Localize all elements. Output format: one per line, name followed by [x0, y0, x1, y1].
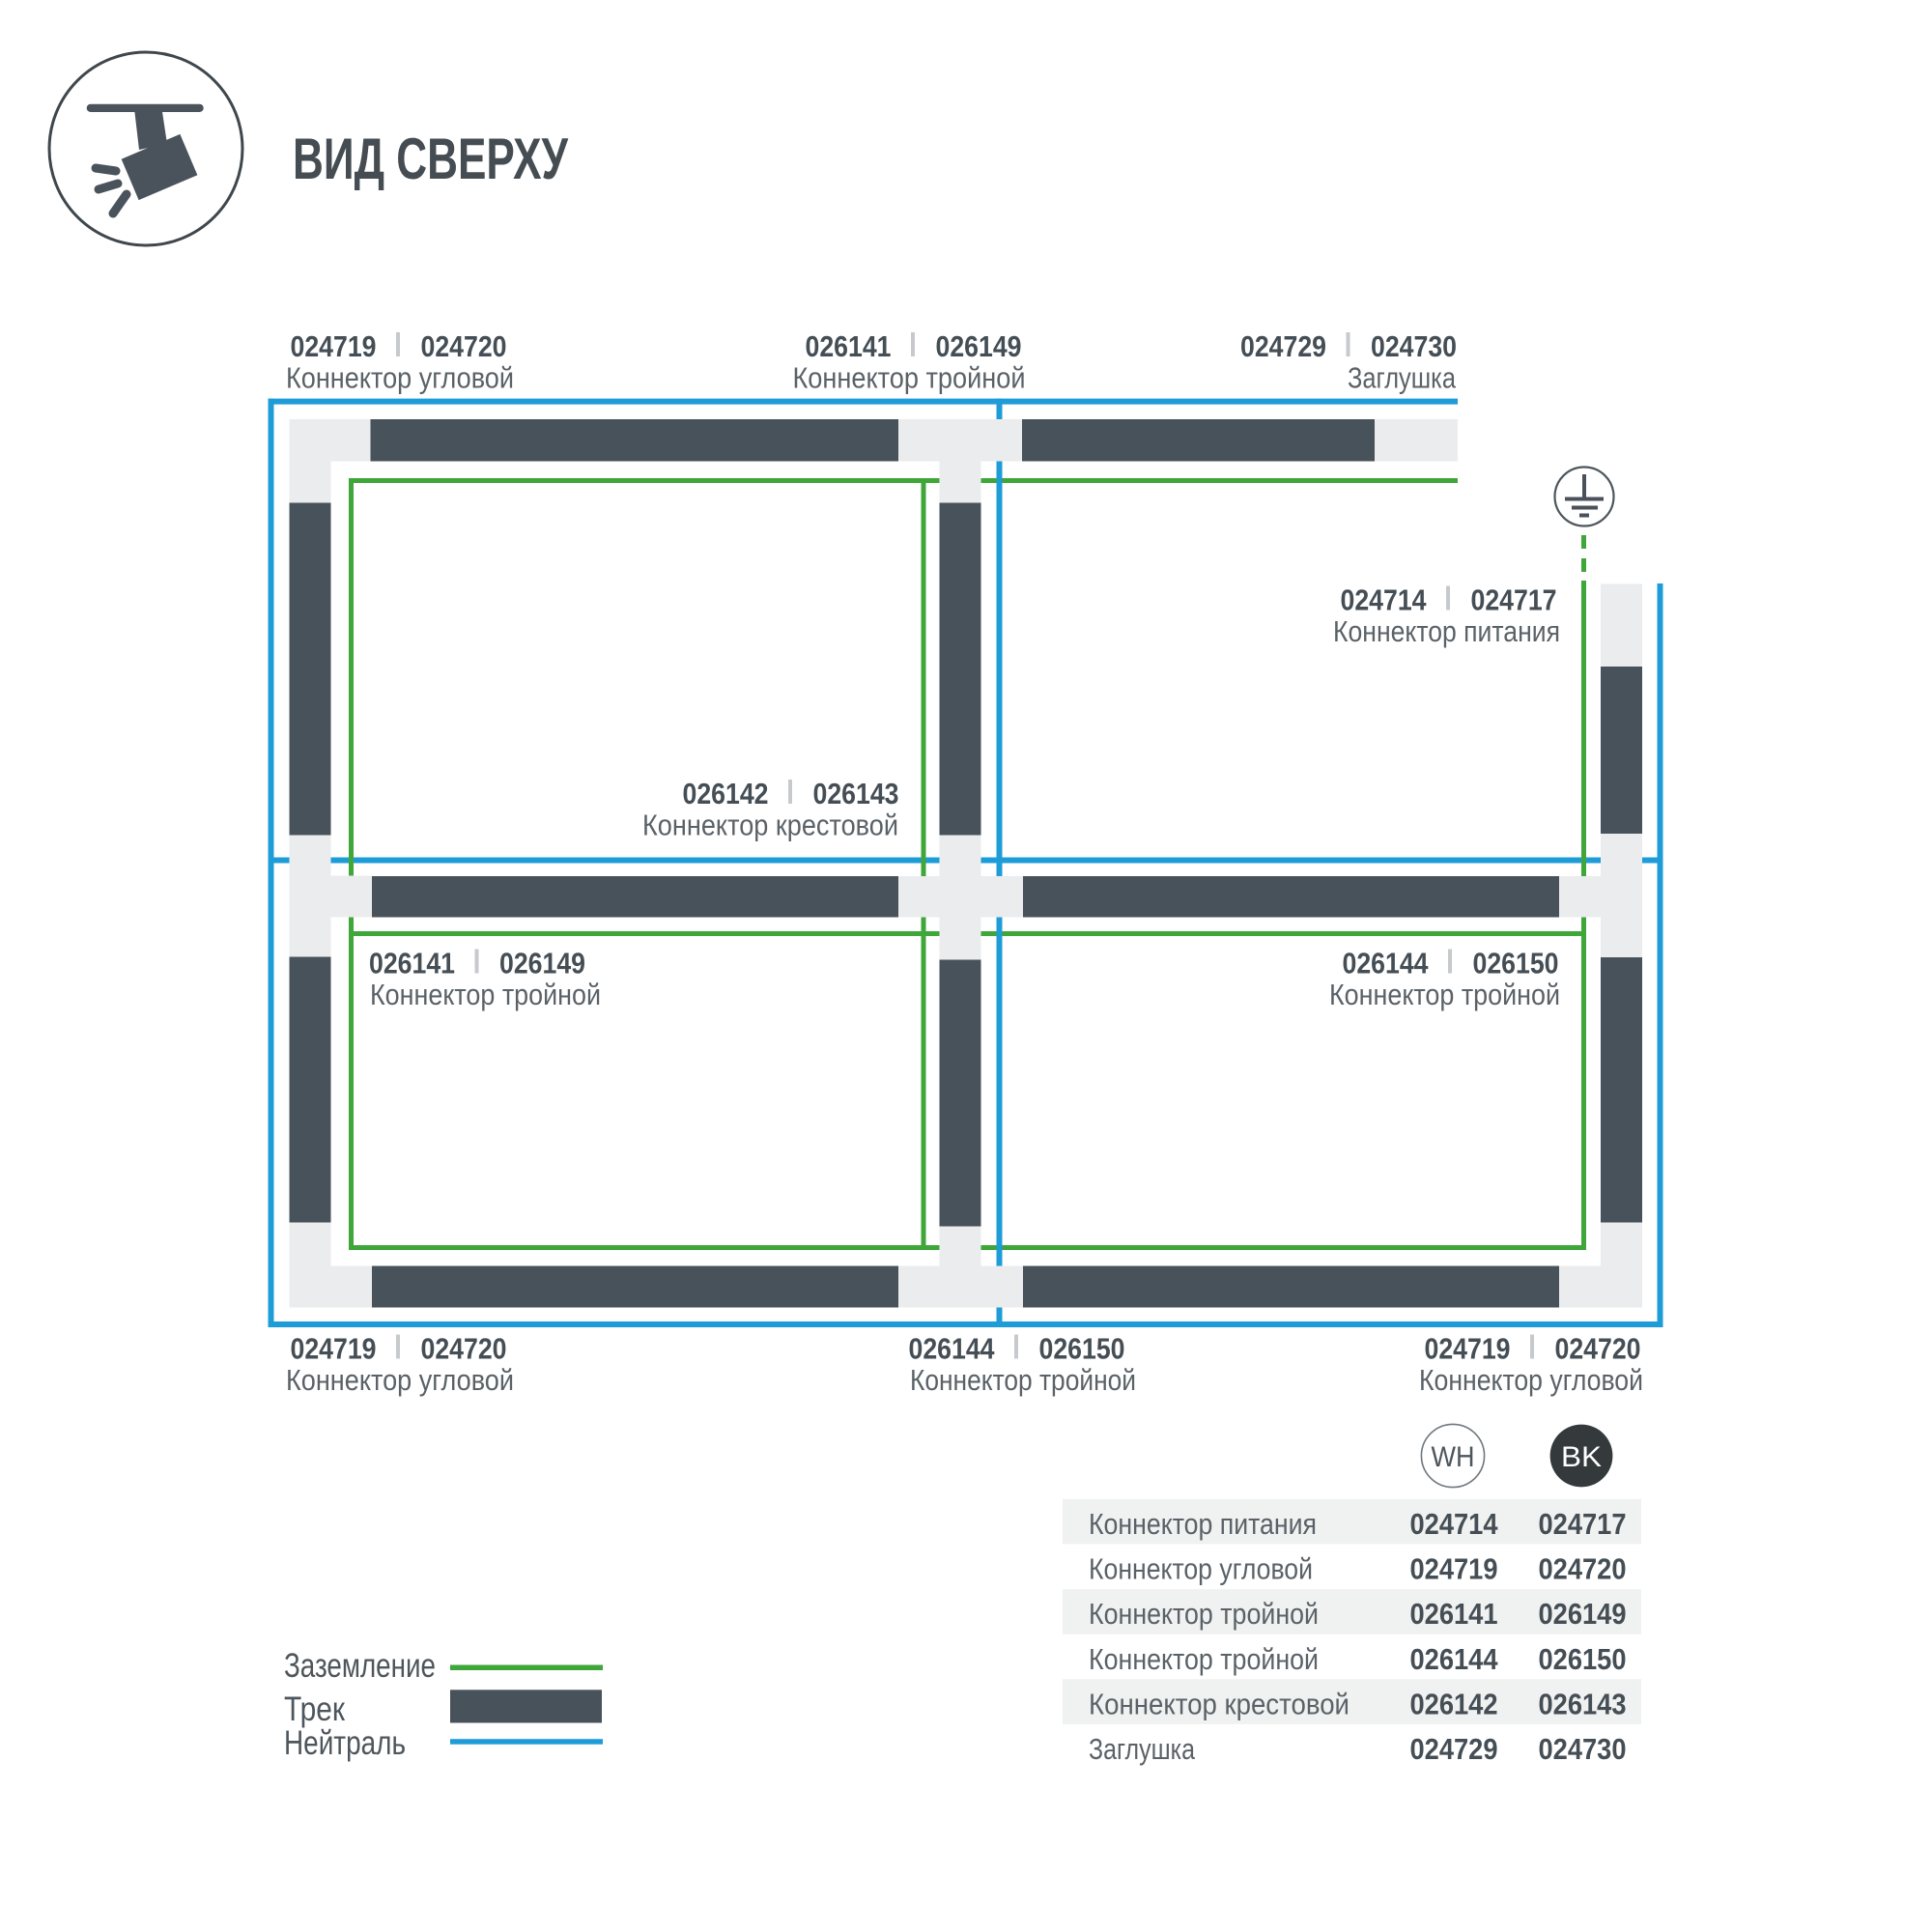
- svg-text:024719: 024719: [1425, 1332, 1511, 1366]
- svg-text:024720: 024720: [421, 329, 507, 363]
- svg-text:024720: 024720: [1539, 1552, 1627, 1586]
- svg-text:024720: 024720: [421, 1332, 507, 1366]
- svg-text:Коннектор угловой: Коннектор угловой: [286, 1363, 514, 1397]
- svg-text:024720: 024720: [1555, 1332, 1641, 1366]
- svg-text:Коннектор угловой: Коннектор угловой: [1419, 1363, 1643, 1397]
- svg-text:026150: 026150: [1473, 947, 1559, 980]
- svg-text:Заземление: Заземление: [284, 1647, 436, 1685]
- svg-text:Трек: Трек: [284, 1690, 346, 1728]
- svg-text:Коннектор крестовой: Коннектор крестовой: [642, 809, 898, 842]
- svg-text:Коннектор тройной: Коннектор тройной: [1329, 978, 1560, 1011]
- svg-text:024730: 024730: [1371, 329, 1457, 363]
- svg-text:026149: 026149: [1539, 1597, 1627, 1631]
- svg-text:026144: 026144: [1410, 1642, 1499, 1676]
- svg-text:Коннектор крестовой: Коннектор крестовой: [1089, 1687, 1350, 1720]
- svg-text:Коннектор тройной: Коннектор тройной: [910, 1363, 1136, 1397]
- svg-text:024729: 024729: [1410, 1732, 1498, 1766]
- svg-text:026142: 026142: [1410, 1687, 1498, 1720]
- svg-text:026141: 026141: [1410, 1597, 1498, 1631]
- svg-text:024730: 024730: [1539, 1732, 1627, 1766]
- svg-text:026149: 026149: [936, 329, 1022, 363]
- svg-text:Коннектор питания: Коннектор питания: [1333, 614, 1560, 648]
- svg-text:024714: 024714: [1341, 583, 1428, 617]
- svg-text:024719: 024719: [1410, 1552, 1498, 1586]
- svg-text:026143: 026143: [1539, 1687, 1627, 1720]
- svg-text:Заглушка: Заглушка: [1089, 1732, 1196, 1766]
- svg-text:WH: WH: [1432, 1441, 1475, 1473]
- svg-text:026143: 026143: [813, 777, 899, 810]
- svg-text:026150: 026150: [1039, 1332, 1125, 1366]
- svg-text:Нейтраль: Нейтраль: [284, 1724, 406, 1762]
- svg-text:Коннектор тройной: Коннектор тройной: [1089, 1597, 1319, 1631]
- svg-text:Заглушка: Заглушка: [1348, 361, 1457, 395]
- svg-text:026141: 026141: [369, 947, 455, 980]
- svg-text:Коннектор угловой: Коннектор угловой: [1089, 1552, 1313, 1586]
- svg-text:ВИД СВЕРХУ: ВИД СВЕРХУ: [293, 127, 568, 191]
- svg-text:024729: 024729: [1240, 329, 1326, 363]
- svg-text:026141: 026141: [806, 329, 892, 363]
- svg-text:Коннектор питания: Коннектор питания: [1089, 1507, 1317, 1541]
- svg-text:026142: 026142: [683, 777, 769, 810]
- svg-text:Коннектор тройной: Коннектор тройной: [370, 978, 601, 1011]
- svg-text:024714: 024714: [1410, 1507, 1499, 1541]
- svg-text:024719: 024719: [291, 1332, 377, 1366]
- svg-text:026144: 026144: [909, 1332, 996, 1366]
- svg-text:024717: 024717: [1539, 1507, 1627, 1541]
- svg-text:Коннектор угловой: Коннектор угловой: [286, 361, 514, 395]
- svg-text:Коннектор тройной: Коннектор тройной: [1089, 1642, 1319, 1676]
- svg-text:BK: BK: [1561, 1441, 1602, 1473]
- svg-text:024719: 024719: [291, 329, 377, 363]
- svg-text:024717: 024717: [1471, 583, 1557, 617]
- svg-text:026144: 026144: [1343, 947, 1430, 980]
- svg-text:026149: 026149: [499, 947, 585, 980]
- svg-text:026150: 026150: [1539, 1642, 1627, 1676]
- svg-text:Коннектор тройной: Коннектор тройной: [793, 361, 1026, 395]
